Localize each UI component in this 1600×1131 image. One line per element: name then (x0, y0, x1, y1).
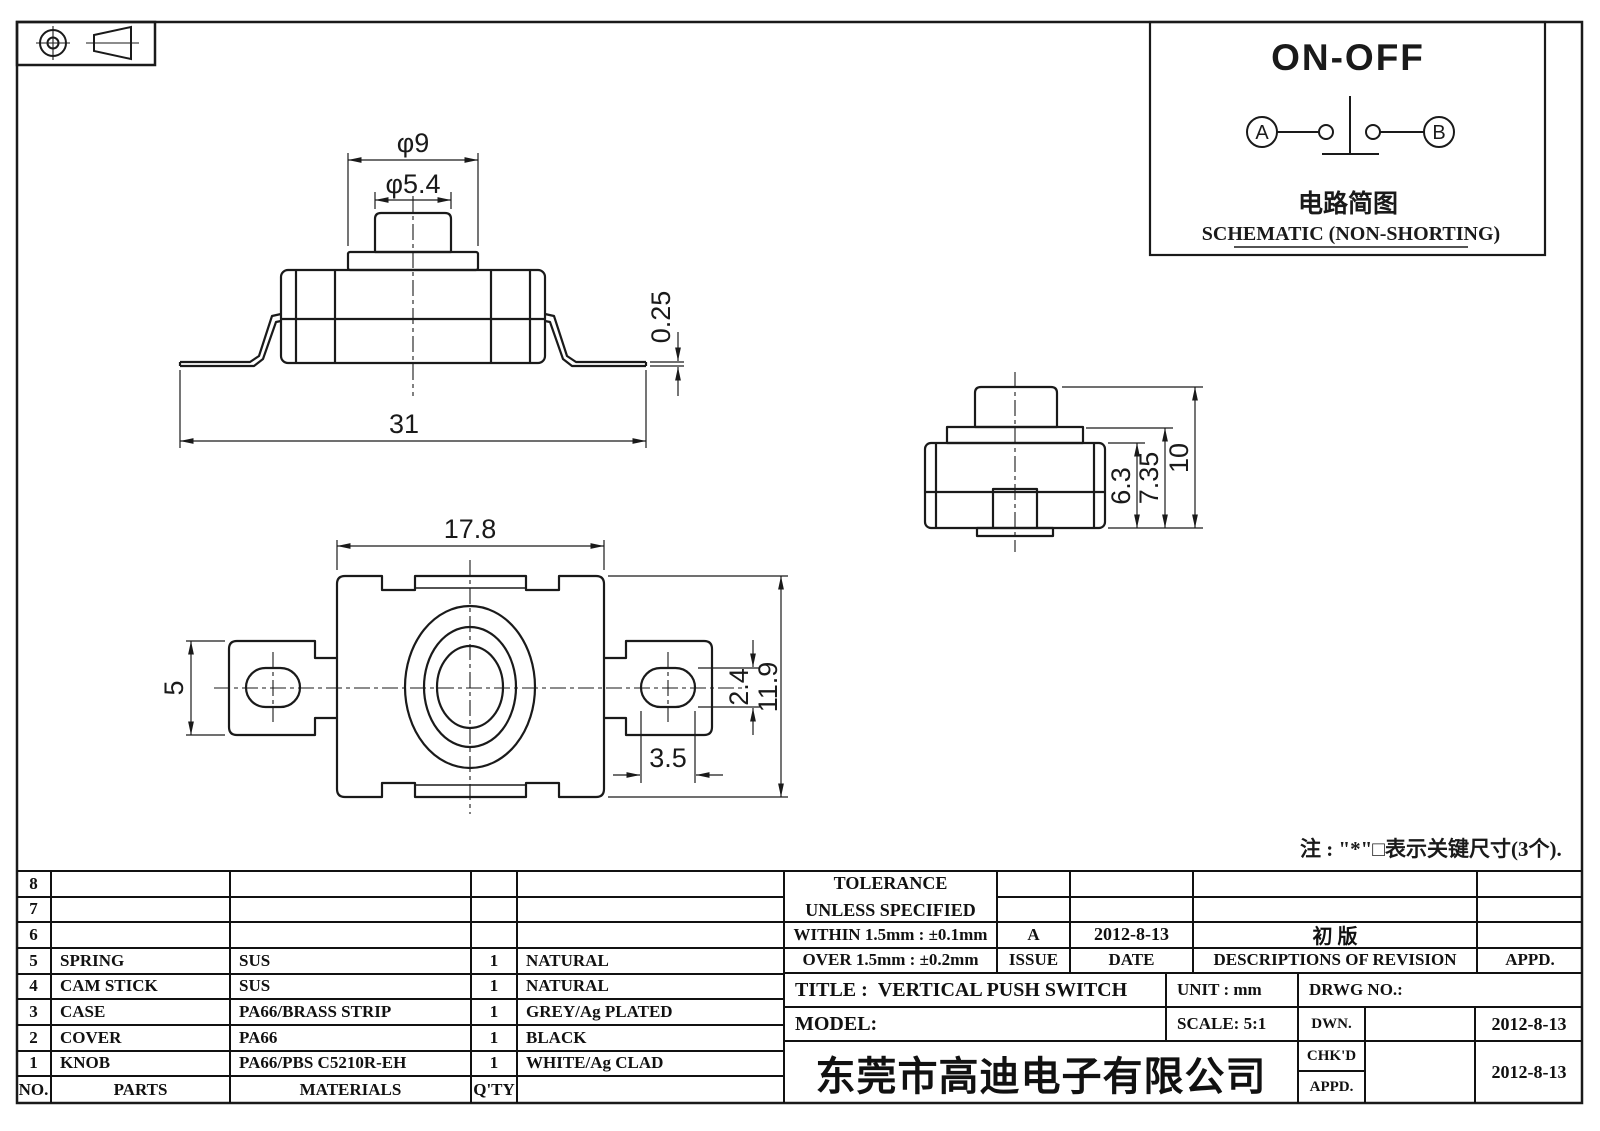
parts-row-finish: NATURAL (518, 949, 783, 975)
parts-row-materials (231, 872, 472, 898)
parts-row-no: 6 (17, 923, 52, 949)
parts-row-parts: COVER (52, 1026, 231, 1052)
revision-description-value: 初 版 (1194, 923, 1478, 949)
dim-body-width: 17.8 (444, 514, 497, 544)
parts-row-no: 2 (17, 1026, 52, 1052)
parts-row-qty (472, 923, 518, 949)
parts-header-materials: MATERIALS (231, 1077, 472, 1103)
top-view: 17.8 5 2.4 11.9 3.5 (159, 514, 788, 814)
parts-row-finish: BLACK (518, 1026, 783, 1052)
revision-cell-empty (1478, 872, 1582, 898)
parts-row-parts: CAM STICK (52, 975, 231, 1001)
title-value: VERTICAL PUSH SWITCH (878, 979, 1127, 1002)
parts-row-finish: GREY/Ag PLATED (518, 1000, 783, 1026)
parts-row-materials: PA66 (231, 1026, 472, 1052)
parts-row-no: 8 (17, 872, 52, 898)
parts-row-parts: KNOB (52, 1052, 231, 1078)
terminal-b-label: B (1432, 122, 1445, 144)
parts-row-finish: NATURAL (518, 975, 783, 1001)
parts-row-materials (231, 923, 472, 949)
tolerance-over: OVER 1.5mm : ±0.2mm (785, 949, 998, 975)
tolerance-block: TOLERANCE UNLESS SPECIFIED WITHIN 1.5mm … (785, 870, 1582, 974)
terminal-a-label: A (1255, 122, 1269, 144)
company-name: 东莞市高迪电子有限公司 (785, 1042, 1299, 1103)
model-cell: MODEL: (785, 1008, 1167, 1042)
schematic-panel: ON-OFF A B 电路简图 SCHEMATIC (NON-SHORTING) (1150, 22, 1545, 255)
parts-row-materials: SUS (231, 949, 472, 975)
revision-cell-empty (998, 872, 1071, 898)
parts-row-finish (518, 898, 783, 924)
schematic-title: ON-OFF (1271, 37, 1425, 78)
dim-knob-diameter: φ5.4 (385, 169, 440, 199)
revision-cell-empty (1071, 898, 1194, 924)
revision-date-label: DATE (1071, 949, 1194, 975)
side-view: 6.3 7.35 10 (925, 372, 1203, 552)
tolerance-title-line2: UNLESS SPECIFIED (805, 897, 976, 923)
dim-flange-diameter: φ9 (397, 128, 430, 158)
dim-hole-width: 3.5 (649, 743, 687, 773)
parts-row-qty: 1 (472, 1026, 518, 1052)
parts-header-parts: PARTS (52, 1077, 231, 1103)
parts-row-qty: 1 (472, 1000, 518, 1026)
parts-row-qty (472, 872, 518, 898)
parts-header-finish (518, 1077, 783, 1103)
title-row: TITLE : VERTICAL PUSH SWITCH (785, 974, 1167, 1008)
revision-description-label: DESCRIPTIONS OF REVISION (1194, 949, 1478, 975)
revision-appd-label: APPD. (1478, 949, 1582, 975)
dim-tab-width: 5 (159, 680, 189, 695)
chkd-date: 2012-8-13 (1476, 1042, 1582, 1103)
dim-total-width: 31 (389, 409, 419, 439)
parts-row-no: 5 (17, 949, 52, 975)
dwn-value (1366, 1008, 1476, 1042)
revision-appd-value (1478, 923, 1582, 949)
parts-row-parts (52, 898, 231, 924)
chkd-label: CHK'D (1299, 1042, 1366, 1072)
title-block: TITLE : VERTICAL PUSH SWITCH UNIT : mm D… (785, 974, 1582, 1103)
dwn-date: 2012-8-13 (1476, 1008, 1582, 1042)
parts-row-qty (472, 898, 518, 924)
title-label: TITLE : (795, 979, 868, 1002)
parts-row-no: 3 (17, 1000, 52, 1026)
tolerance-title-line1: TOLERANCE (834, 872, 948, 897)
drwg-no-cell: DRWG NO.: (1299, 974, 1582, 1008)
dim-with-flange: 7.35 (1134, 452, 1164, 505)
drawing-sheet: φ9 φ5.4 0.25 31 (0, 0, 1600, 1131)
parts-header-no: NO. (17, 1077, 52, 1103)
parts-table: 8 7 6 5 SPRING SUS 1 NATURAL 4 CAM STICK… (17, 870, 785, 1103)
revision-cell-empty (1194, 898, 1478, 924)
revision-cell-empty (1071, 872, 1194, 898)
parts-row-materials: SUS (231, 975, 472, 1001)
dwn-label: DWN. (1299, 1008, 1366, 1042)
revision-cell-empty (1478, 898, 1582, 924)
key-dimension-note: 注 : "*"□表示关键尺寸(3个). (1300, 837, 1562, 861)
circuit-symbol (1247, 96, 1454, 154)
parts-row-materials: PA66/PBS C5210R-EH (231, 1052, 472, 1078)
dim-body-height: 11.9 (753, 662, 783, 713)
revision-issue-value: A (998, 923, 1071, 949)
revision-cell-empty (1194, 872, 1478, 898)
dwn-row: DWN. 2012-8-13 (1299, 1008, 1582, 1042)
parts-row-parts (52, 923, 231, 949)
revision-date-value: 2012-8-13 (1071, 923, 1194, 949)
revision-issue-label: ISSUE (998, 949, 1071, 975)
parts-row-qty: 1 (472, 1052, 518, 1078)
approval-area: CHK'D APPD. 2012-8-13 (1299, 1042, 1582, 1103)
unit-cell: UNIT : mm (1167, 974, 1299, 1008)
parts-row-parts: CASE (52, 1000, 231, 1026)
parts-row-no: 7 (17, 898, 52, 924)
schematic-caption-en: SCHEMATIC (NON-SHORTING) (1202, 223, 1500, 245)
scale-cell: SCALE: 5:1 (1167, 1008, 1299, 1042)
parts-row-materials: PA66/BRASS STRIP (231, 1000, 472, 1026)
dim-lead-thickness: 0.25 (646, 291, 676, 344)
tolerance-title: TOLERANCE UNLESS SPECIFIED (785, 872, 998, 923)
parts-row-finish: WHITE/Ag CLAD (518, 1052, 783, 1078)
parts-header-qty: Q'TY (472, 1077, 518, 1103)
tolerance-within: WITHIN 1.5mm : ±0.1mm (785, 923, 998, 949)
parts-row-finish (518, 872, 783, 898)
chkd-appd-value (1366, 1042, 1476, 1103)
parts-row-materials (231, 898, 472, 924)
parts-row-parts: SPRING (52, 949, 231, 975)
parts-row-qty: 1 (472, 975, 518, 1001)
front-view: φ9 φ5.4 0.25 31 (180, 128, 684, 448)
dim-hole-height: 2.4 (724, 668, 754, 706)
projection-symbol (17, 22, 155, 65)
appd-label: APPD. (1299, 1072, 1366, 1103)
revision-cell-empty (998, 898, 1071, 924)
parts-row-parts (52, 872, 231, 898)
dim-total-height: 10 (1164, 443, 1194, 473)
parts-row-no: 1 (17, 1052, 52, 1078)
parts-row-finish (518, 923, 783, 949)
parts-row-no: 4 (17, 975, 52, 1001)
dim-case-height: 6.3 (1106, 467, 1136, 505)
parts-row-qty: 1 (472, 949, 518, 975)
schematic-caption-cn: 电路简图 (1298, 189, 1398, 218)
